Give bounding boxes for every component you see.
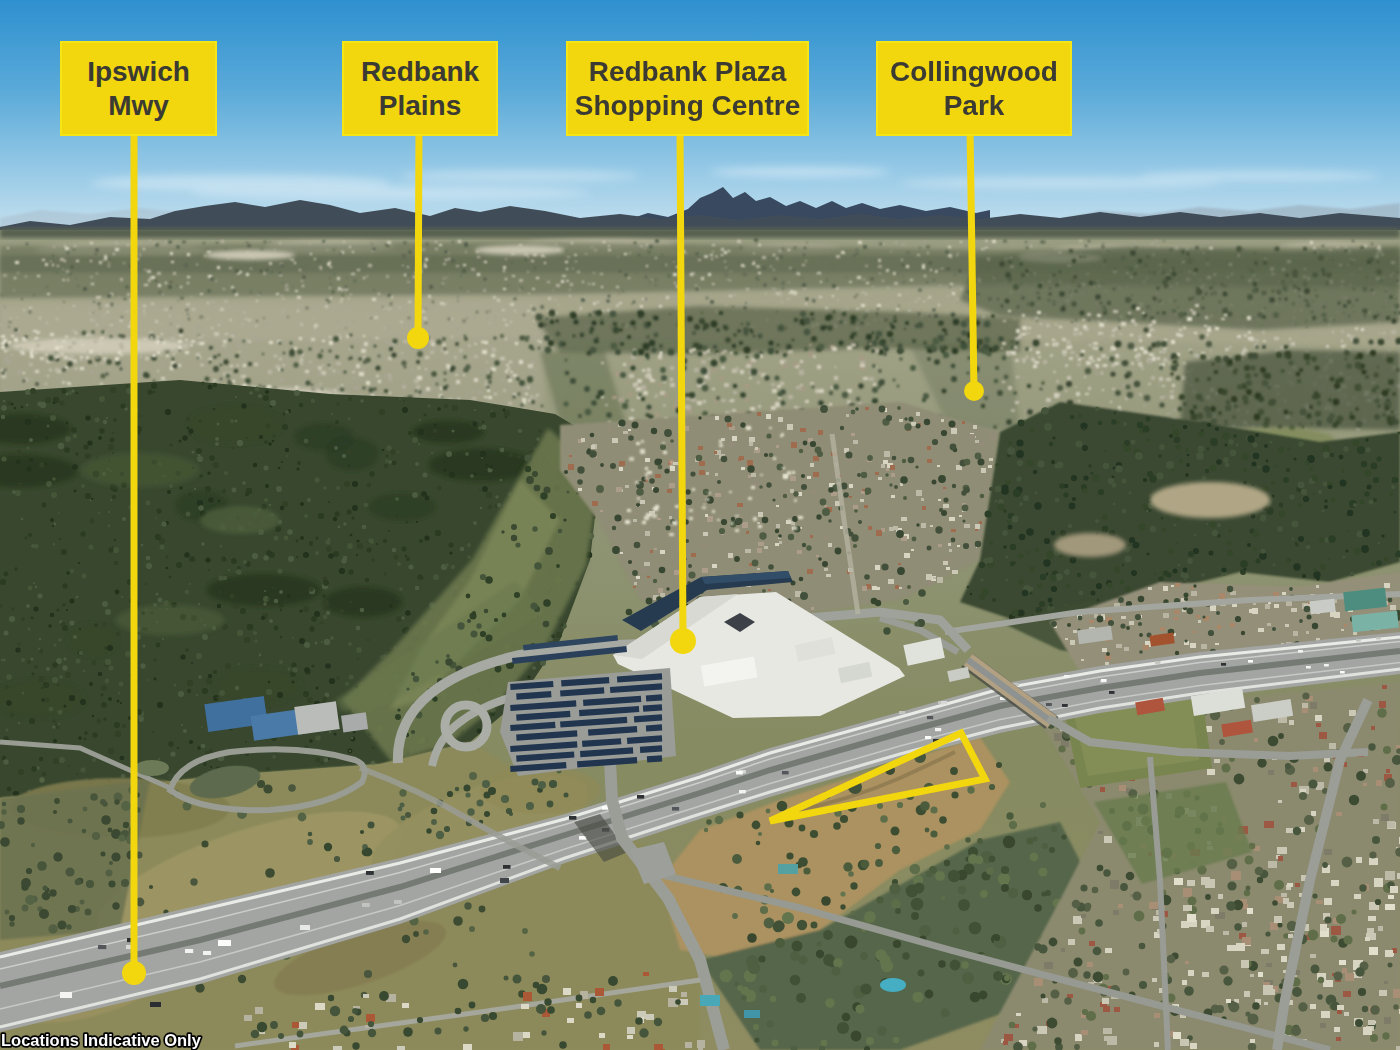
svg-text:Locations Indicative Only: Locations Indicative Only: [1, 1031, 202, 1049]
